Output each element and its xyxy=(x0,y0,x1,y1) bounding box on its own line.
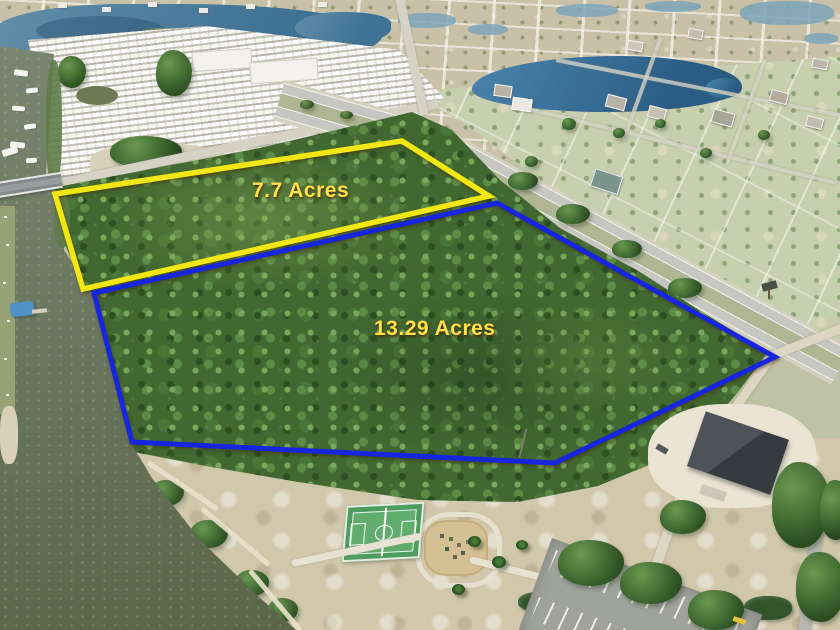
aerial-photo: 7.7 Acres 13.29 Acres xyxy=(0,0,840,630)
parcel-label-small: 7.7 Acres xyxy=(252,180,349,201)
parcel-outline-small xyxy=(55,141,489,289)
parcel-outlines xyxy=(0,0,840,630)
parcel-label-large: 13.29 Acres xyxy=(374,318,495,339)
